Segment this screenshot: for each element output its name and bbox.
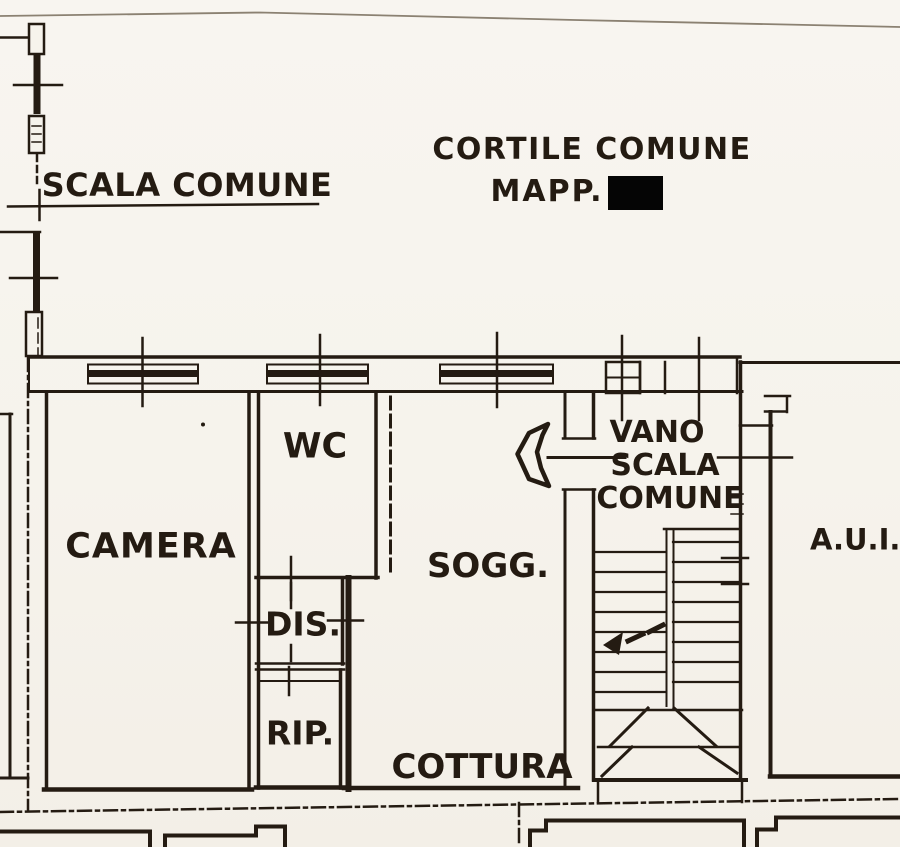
room-wc-walls: [256, 393, 391, 600]
stair-direction-arrow-icon: [603, 625, 663, 655]
scan-edge-line: [0, 13, 900, 28]
room-label-vano-scala-line3: COMUNE: [596, 484, 743, 514]
room-label-rip: RIP.: [266, 717, 334, 750]
room-label-cottura: COTTURA: [391, 750, 572, 784]
courtyard-label: CORTILE COMUNE: [432, 135, 751, 165]
map-number-label: MAPP.: [491, 177, 604, 207]
room-label-wc: WC: [283, 430, 347, 465]
room-label-auil: A.U.I.L: [810, 526, 900, 555]
common-stair-label: SCALA COMUNE: [42, 169, 333, 201]
room-label-dis: DIS.: [265, 608, 341, 641]
lower-unit-walls: [0, 818, 900, 847]
room-label-camera: CAMERA: [65, 530, 237, 565]
redacted-map-number: [608, 176, 663, 210]
right-section-walls: [718, 396, 900, 777]
room-sogg-walls: [344, 393, 625, 788]
room-label-vano-scala-line1: VANO: [609, 418, 704, 448]
room-label-sogg: SOGG.: [427, 549, 549, 583]
room-label-vano-scala-line2: SCALA: [610, 451, 719, 481]
window-icons: [88, 333, 737, 420]
floorplan-linework: [0, 0, 900, 847]
entrance-arrow-icon: [518, 424, 550, 486]
floor-plan: CORTILE COMUNE MAPP. SCALA COMUNE CAMERA…: [0, 0, 900, 847]
room-camera-walls: [44, 393, 252, 790]
